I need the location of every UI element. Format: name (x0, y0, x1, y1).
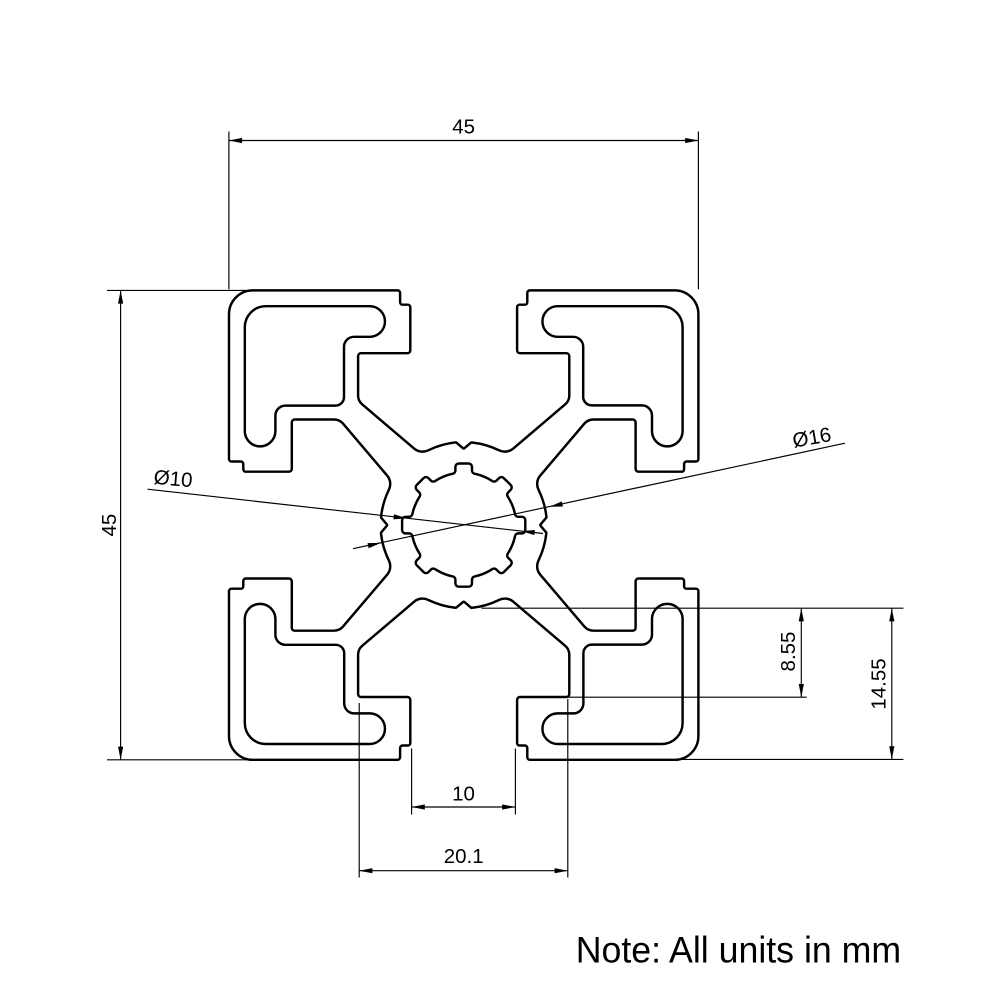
svg-text:45: 45 (452, 116, 475, 139)
svg-text:45: 45 (98, 514, 121, 537)
svg-text:20.1: 20.1 (444, 845, 484, 868)
svg-text:Note: All units in mm: Note: All units in mm (576, 929, 902, 970)
svg-text:8.55: 8.55 (777, 632, 800, 672)
svg-text:14.55: 14.55 (867, 658, 890, 709)
svg-text:10: 10 (452, 782, 475, 805)
svg-text:Ø10: Ø10 (153, 466, 194, 492)
svg-text:Ø16: Ø16 (791, 423, 833, 452)
